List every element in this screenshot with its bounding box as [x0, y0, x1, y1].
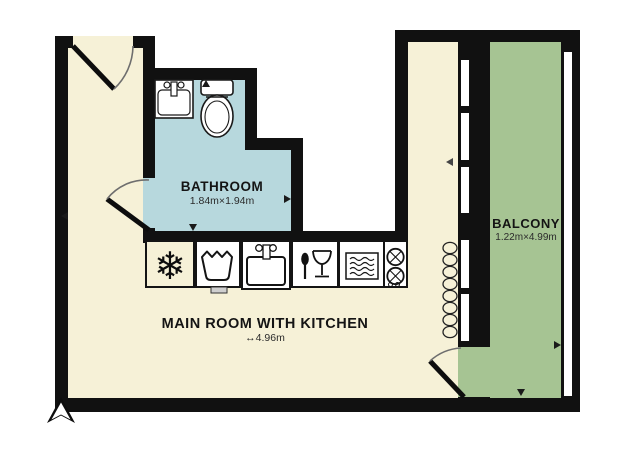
partition-window-1 [461, 60, 469, 106]
bottom-wall [55, 398, 580, 412]
radiator-fin [443, 326, 457, 337]
radiator-fin [443, 278, 457, 289]
floor-plan-svg: ❄ [0, 0, 640, 468]
kitchen-sink-knob-right [270, 245, 277, 252]
radiator-fin [443, 314, 457, 325]
washbasin-knob-right [178, 82, 184, 88]
radiator-fin [443, 242, 457, 253]
radiator-fin [443, 254, 457, 265]
bathroom-label: BATHROOM [181, 179, 264, 194]
bathroom-door-opening [143, 178, 155, 228]
balcony-door-opening [458, 347, 490, 397]
radiator-fin [443, 290, 457, 301]
partition-window-2 [461, 113, 469, 160]
partition-window-4 [461, 240, 469, 288]
outer-mid-wall [395, 30, 408, 241]
bathroom-right-lower-wall [291, 138, 303, 241]
kitchen-appliances: ❄ [146, 241, 407, 293]
radiator-fin [443, 302, 457, 313]
washbasin-icon [155, 80, 193, 118]
bathroom-dimensions: 1.84m×1.94m [190, 195, 255, 207]
passage-floor [406, 42, 458, 247]
washbasin-tap [171, 82, 177, 96]
washbasin-knob-left [164, 82, 170, 88]
bathroom-right-upper-wall [245, 68, 257, 150]
kitchen-back-wall [143, 231, 407, 241]
main-room-dimensions: ↔4.96m [245, 332, 285, 344]
dishwasher-box [292, 241, 338, 287]
kitchen-sink-knob-left [256, 245, 263, 252]
left-wall [55, 36, 68, 410]
balcony-label: BALCONY [492, 216, 560, 231]
partition-window-5 [461, 294, 469, 341]
entry-opening [73, 36, 133, 48]
corridor-right-wall [143, 36, 155, 178]
top-right-wall [395, 30, 580, 42]
snowflake-icon: ❄ [154, 244, 186, 288]
kitchen-sink-tap [263, 245, 270, 259]
kitchen-sink-bowl [247, 257, 285, 285]
main-room-label: MAIN ROOM WITH KITCHEN [162, 316, 369, 332]
partition-window-3 [461, 167, 469, 213]
radiator-fin [443, 266, 457, 277]
toilet-icon [201, 80, 233, 137]
bathroom-top-wall [143, 68, 257, 80]
balcony-railing-window [564, 52, 572, 396]
balcony-dimensions: 1.22m×4.99m [495, 232, 556, 243]
washing-machine-tab [211, 287, 227, 293]
floor-plan: ❄ [0, 0, 640, 468]
